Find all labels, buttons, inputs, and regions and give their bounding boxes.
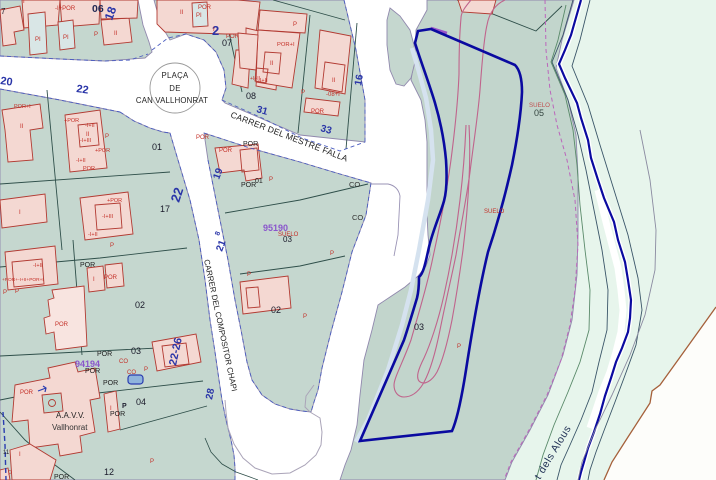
svg-text:POR: POR <box>196 135 210 141</box>
svg-text:SUELO: SUELO <box>278 232 299 238</box>
svg-text:POR: POR <box>226 34 240 40</box>
svg-text:POR: POR <box>55 322 69 328</box>
svg-text:POR: POR <box>80 262 95 269</box>
svg-text:POR: POR <box>104 275 118 281</box>
svg-text:POR: POR <box>103 380 118 387</box>
svg-text:POR: POR <box>219 148 233 154</box>
svg-text:PI: PI <box>63 35 69 41</box>
svg-text:P: P <box>94 32 98 38</box>
svg-text:POR+I: POR+I <box>277 42 295 48</box>
svg-text:POR: POR <box>243 141 258 148</box>
svg-text:P: P <box>15 289 19 295</box>
svg-text:11: 11 <box>3 450 10 456</box>
svg-text:II: II <box>332 78 336 84</box>
svg-text:POR: POR <box>110 411 125 418</box>
svg-text:II: II <box>270 61 274 67</box>
svg-text:II: II <box>180 10 184 16</box>
svg-text:P: P <box>293 22 297 28</box>
svg-text:17: 17 <box>160 204 170 214</box>
svg-text:-I+II: -I+II <box>88 232 98 238</box>
svg-text:P: P <box>330 251 334 257</box>
svg-text:CO: CO <box>352 213 363 222</box>
svg-text:-I+II: -I+II <box>85 123 95 129</box>
svg-text:P: P <box>122 403 127 410</box>
svg-text:+I+II: +I+II <box>250 76 260 82</box>
svg-text:POR: POR <box>241 182 256 189</box>
svg-text:II: II <box>114 31 118 37</box>
svg-text:POR: POR <box>198 5 212 11</box>
svg-text:02: 02 <box>135 300 145 310</box>
svg-text:DE: DE <box>169 84 180 93</box>
svg-text:PLAÇA: PLAÇA <box>161 71 189 80</box>
svg-text:POR: POR <box>311 109 325 115</box>
svg-text:P: P <box>301 90 305 96</box>
svg-text:CO: CO <box>349 180 360 189</box>
svg-text:08: 08 <box>246 91 256 101</box>
svg-text:05: 05 <box>534 108 544 118</box>
svg-text:01: 01 <box>152 142 162 152</box>
svg-text:-08+I: -08+I <box>326 92 340 98</box>
svg-text:P: P <box>8 471 12 477</box>
svg-text:POR: POR <box>97 351 112 358</box>
svg-text:01: 01 <box>255 178 263 185</box>
svg-text:03: 03 <box>131 346 141 356</box>
svg-text:P: P <box>105 134 109 140</box>
svg-text:22: 22 <box>76 83 90 97</box>
svg-text:-I+II: -I+II <box>76 158 86 164</box>
svg-text:II: II <box>86 132 90 138</box>
svg-text:P: P <box>457 344 461 350</box>
svg-text:+POR: +POR <box>107 198 122 204</box>
svg-text:POR+I: POR+I <box>14 104 31 110</box>
svg-text:P: P <box>144 367 148 373</box>
svg-text:P: P <box>247 272 251 278</box>
svg-text:CAN VALLHONRAT: CAN VALLHONRAT <box>136 96 208 105</box>
svg-text:12: 12 <box>104 467 114 477</box>
svg-text:POR: POR <box>85 368 100 375</box>
svg-text:02: 02 <box>271 305 281 315</box>
svg-text:7: 7 <box>1 7 6 16</box>
svg-text:03: 03 <box>414 322 424 332</box>
svg-text:CO: CO <box>119 359 128 365</box>
svg-text:P: P <box>110 243 114 249</box>
svg-text:II: II <box>20 124 24 130</box>
svg-text:SUELO: SUELO <box>529 102 550 109</box>
svg-text:-I+III: -I+III <box>102 214 114 220</box>
svg-text:P: P <box>303 314 307 320</box>
svg-text:06: 06 <box>92 3 104 15</box>
svg-text:+POR: +POR <box>64 118 79 124</box>
svg-text:+POR: +POR <box>95 148 110 154</box>
svg-text:POR: POR <box>20 390 34 396</box>
svg-text:P: P <box>269 177 273 183</box>
svg-text:A.A.V.V.: A.A.V.V. <box>56 411 85 420</box>
svg-text:-I+II: -I+II <box>33 263 43 269</box>
svg-text:-I+III: -I+III <box>80 138 92 144</box>
svg-text:POR: POR <box>83 166 95 172</box>
svg-text:Vallhonrat: Vallhonrat <box>52 423 88 432</box>
svg-text:SUELO: SUELO <box>484 209 505 215</box>
svg-text:PI: PI <box>196 13 202 19</box>
svg-text:+POR+-I+II+POR+I: +POR+-I+II+POR+I <box>2 277 44 283</box>
svg-text:P: P <box>150 459 154 465</box>
svg-text:PI: PI <box>35 37 41 43</box>
svg-text:P: P <box>3 290 7 296</box>
svg-text:20: 20 <box>0 75 13 89</box>
svg-text:POR: POR <box>54 474 69 480</box>
svg-text:-I+POR: -I+POR <box>55 6 76 12</box>
svg-text:04: 04 <box>136 397 146 407</box>
